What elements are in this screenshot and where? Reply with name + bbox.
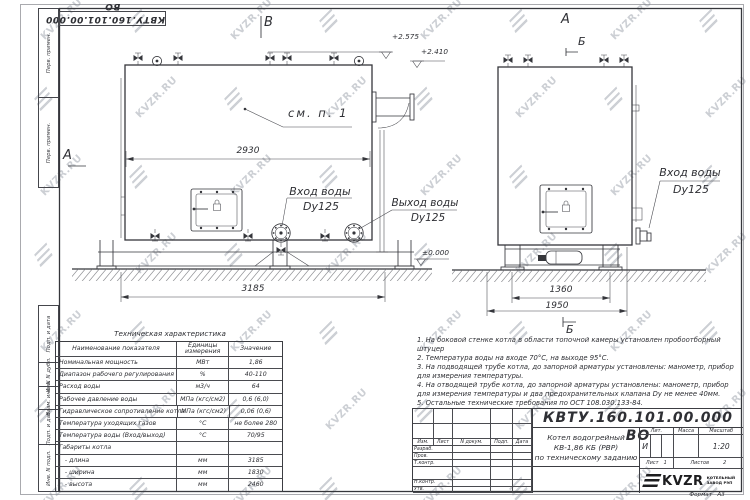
kvzr-logo-text: KVZR — [662, 474, 704, 489]
revision-cell: Изм. — [413, 439, 434, 446]
revision-cell — [453, 446, 491, 453]
margin-cell-label: Подп. и дата — [46, 409, 52, 446]
revision-cell — [491, 446, 513, 453]
format-value: А3 — [717, 492, 724, 498]
scale-header: Масштаб — [699, 428, 743, 435]
spec-cell: 3185 — [229, 455, 282, 467]
inlet-label-front: Вход воды — [289, 185, 350, 198]
inlet-size-front: Dy125 — [303, 200, 339, 213]
revision-cell — [491, 424, 513, 439]
spec-row: Температура уходящих газов°Сне более 280 — [56, 418, 282, 430]
inlet-flange-side — [636, 228, 651, 244]
spec-cell: Диапазон рабочего регулирования — [56, 369, 177, 381]
flue-elbow — [372, 92, 414, 252]
inlet-label-side: Вход воды — [659, 166, 720, 179]
spec-cell: мм — [177, 479, 230, 491]
revision-cell: Т.контр. — [413, 460, 453, 467]
spec-cell: Номинальная мощность — [56, 357, 177, 369]
lit-cell-3 — [662, 435, 673, 458]
revision-cell — [453, 453, 491, 460]
spec-cell: % — [177, 369, 230, 381]
revision-cell — [491, 453, 513, 460]
title-block-empty-cell — [532, 467, 639, 493]
doc-number: КВТУ.160.101.00.000 ВО — [532, 409, 743, 428]
kvzr-stripes-icon — [642, 474, 662, 489]
section-label-b-side-bottom: Б — [566, 323, 574, 336]
spec-cell: °С — [177, 418, 230, 430]
note-line: 3. На подводящей трубе котла, до запорно… — [417, 363, 741, 381]
spec-cell: м3/ч — [177, 381, 230, 393]
revision-cell: Подп. — [491, 439, 513, 446]
margin-cell: Перв. примен. — [38, 98, 59, 188]
spec-cell: - длина — [56, 455, 177, 467]
sheet-cell: Лист 1 — [640, 458, 674, 469]
outlet-size-front: Dy125 — [411, 212, 445, 224]
revision-cell — [513, 409, 532, 424]
drawing-sheet: KVZR.RUKVZR.RUKVZR.RUKVZR.RUKVZR.RUKVZR.… — [0, 0, 750, 500]
spec-cell: 1830 — [229, 467, 282, 479]
revision-cell — [491, 460, 513, 467]
spec-row: Гидравлическое сопротивление котлаМПа (к… — [56, 406, 282, 418]
spec-row: Габариты котла — [56, 442, 282, 454]
revision-cell — [453, 487, 491, 494]
dim-3185: 3185 — [242, 284, 265, 294]
margin-cell-label: Перв. примен. — [46, 33, 52, 73]
spec-cell: 1,86 — [229, 357, 282, 369]
spec-cell: не более 280 — [229, 418, 282, 430]
revision-cell — [513, 460, 532, 467]
section-label-a-side: А — [561, 12, 570, 27]
spec-cell: 0,06 (0,6) — [230, 406, 282, 418]
dim-1360: 1360 — [550, 285, 573, 295]
revision-cell — [491, 487, 513, 494]
lit-header: Лит. — [640, 428, 674, 435]
revision-cell: Утв. — [413, 487, 453, 494]
drawing-title-line1: Котел водогрейный — [533, 433, 639, 442]
spec-header: Наименование показателя — [56, 342, 177, 357]
margin-cell: Перв. примен. — [38, 8, 59, 98]
lit-cell-2 — [651, 435, 662, 458]
margin-cell-label: Перв. примен. — [46, 122, 52, 162]
spec-cell: 0,6 (6,0) — [229, 394, 282, 406]
title-block-right: Лит. Масса Масштаб И 1:20 Лист 1 Листов … — [639, 428, 743, 493]
elevation-0000: ±0.000 — [422, 248, 449, 257]
spec-cell: Расход воды — [56, 381, 177, 393]
top-valves-side — [504, 55, 629, 67]
spec-cell: Габариты котла — [56, 442, 177, 454]
revision-cell — [453, 409, 491, 424]
support-frame-side — [501, 245, 622, 270]
sheets-value: 2 — [723, 460, 726, 466]
spec-cell: °С — [177, 430, 230, 442]
mass-header: Масса — [674, 428, 700, 435]
lit-value: И — [640, 435, 651, 458]
drawing-title-line2: КВ-1,86 КБ (РВР) — [533, 443, 639, 452]
revision-cell — [453, 467, 491, 480]
revision-cell — [491, 467, 513, 480]
corner-doc-number: КВТУ.160.101.00.000 ВО — [59, 11, 166, 26]
burner — [546, 251, 582, 264]
sheet-value: 1 — [664, 460, 667, 466]
revision-cell: Лист — [434, 439, 453, 446]
margin-cell-label: Подп. и дата — [46, 316, 52, 353]
drawing-title: Котел водогрейный КВ-1,86 КБ (РВР) по те… — [532, 428, 639, 467]
spec-row: - ширинамм1830 — [56, 467, 282, 479]
spec-cell: Рабочее давление воды — [56, 394, 177, 406]
spec-cell: 2460 — [229, 479, 282, 491]
revision-cell — [453, 424, 491, 439]
spec-cell: МПа (кгс/см2) — [177, 394, 230, 406]
sheet-label: Лист — [646, 460, 659, 466]
revision-cell — [513, 424, 532, 439]
elevation-2410: +2.410 — [421, 47, 448, 56]
spec-table-title: Техническая характеристика — [60, 329, 280, 338]
revision-cell — [434, 409, 453, 424]
format-note: Формат А3 — [672, 492, 742, 498]
section-label-a-front: А — [63, 148, 72, 163]
spec-row: Расход водым3/ч64 — [56, 381, 282, 393]
revision-cell — [413, 467, 453, 480]
note-line: 5. Остальные технические требования по О… — [417, 399, 741, 408]
revision-cell — [513, 467, 532, 480]
spec-cell: Гидравлическое сопротивление котла — [56, 406, 178, 418]
spec-row: Диапазон рабочего регулирования%40-110 — [56, 369, 282, 381]
spec-cell: 64 — [229, 381, 282, 393]
spec-cell: Температура уходящих газов — [56, 418, 177, 430]
callout-see-note-1: см. п. 1 — [288, 106, 348, 120]
drawing-title-line3: по техническому заданию — [533, 453, 639, 462]
spec-row: - длинамм3185 — [56, 455, 282, 467]
revision-grid: Изм.ЛистN докум.Подп.ДатаРазраб.Пров.Т.к… — [413, 409, 532, 493]
spec-row: Рабочее давление водыМПа (кгс/см2)0,6 (6… — [56, 394, 282, 406]
note-line: 1. На боковой стенке котла в области топ… — [417, 336, 741, 354]
org-line2: ЗАВОД РЭП — [707, 481, 736, 486]
mass-value — [674, 435, 700, 458]
spec-row: Номинальная мощностьМВт1,86 — [56, 357, 282, 369]
technical-notes: 1. На боковой стенке котла в области топ… — [417, 336, 741, 408]
revision-cell — [513, 487, 532, 494]
dim-1950: 1950 — [546, 301, 569, 311]
revision-cell: Дата — [513, 439, 532, 446]
spec-cell: мм — [177, 455, 230, 467]
outlet-label-front: Выход воды — [392, 197, 459, 209]
title-block: Изм.ЛистN докум.Подп.ДатаРазраб.Пров.Т.к… — [412, 408, 742, 492]
furnace-door-front — [191, 189, 242, 231]
ground-hatch-front — [72, 269, 432, 281]
spec-cell: - ширина — [56, 467, 177, 479]
spec-row: - высотамм2460 — [56, 479, 282, 491]
boiler-front-view — [68, 16, 457, 302]
elevation-2575: +2.575 — [392, 32, 419, 41]
inlet-size-side: Dy125 — [673, 183, 709, 196]
spec-cell — [177, 442, 230, 454]
spec-cell: мм — [177, 467, 230, 479]
spec-cell: - высота — [56, 479, 177, 491]
spec-cell: 70/95 — [229, 430, 282, 442]
top-valves-front — [134, 53, 339, 65]
spec-cell — [229, 442, 282, 454]
revision-cell — [434, 424, 453, 439]
company-logo: KVZR КОТЕЛЬНЫЙ ЗАВОД РЭП — [640, 469, 743, 493]
section-label-b-front: В — [264, 15, 273, 30]
dim-2930: 2930 — [237, 146, 260, 156]
revision-cell — [491, 409, 513, 424]
revision-cell: Разраб. — [413, 446, 453, 453]
spec-cell: МВт — [177, 357, 230, 369]
sheets-label: Листов — [690, 460, 709, 466]
note-line: 2. Температура воды на входе 70°С, на вы… — [417, 354, 741, 363]
revision-cell: Пров. — [413, 453, 453, 460]
revision-cell — [413, 409, 434, 424]
spec-header: Единицы измерения — [177, 342, 230, 357]
ground-hatch-side — [452, 270, 706, 282]
sheets-cell: Листов 2 — [674, 458, 743, 469]
note-line: 4. На отводящей трубе котла, до запорной… — [417, 381, 741, 399]
spec-cell: МПа (кгс/см2) — [178, 406, 230, 418]
spec-cell: Температура воды (Вход/выход) — [56, 430, 177, 442]
section-label-b-side-top: Б — [578, 35, 586, 48]
format-label: Формат — [689, 492, 712, 498]
spec-cell: 40-110 — [229, 369, 282, 381]
revision-cell — [513, 453, 532, 460]
spec-header: Значение — [229, 342, 282, 357]
spec-table: Наименование показателяЕдиницы измерения… — [55, 341, 283, 492]
revision-cell — [513, 446, 532, 453]
revision-cell: N докум. — [453, 439, 491, 446]
furnace-door-side — [540, 185, 592, 233]
revision-cell — [453, 460, 491, 467]
support-frame-front — [97, 240, 414, 269]
scale-value: 1:20 — [699, 435, 743, 458]
margin-cell-label: Инв. N подл. — [46, 450, 52, 486]
spec-row: Температура воды (Вход/выход)°С70/95 — [56, 430, 282, 442]
revision-cell — [413, 424, 434, 439]
